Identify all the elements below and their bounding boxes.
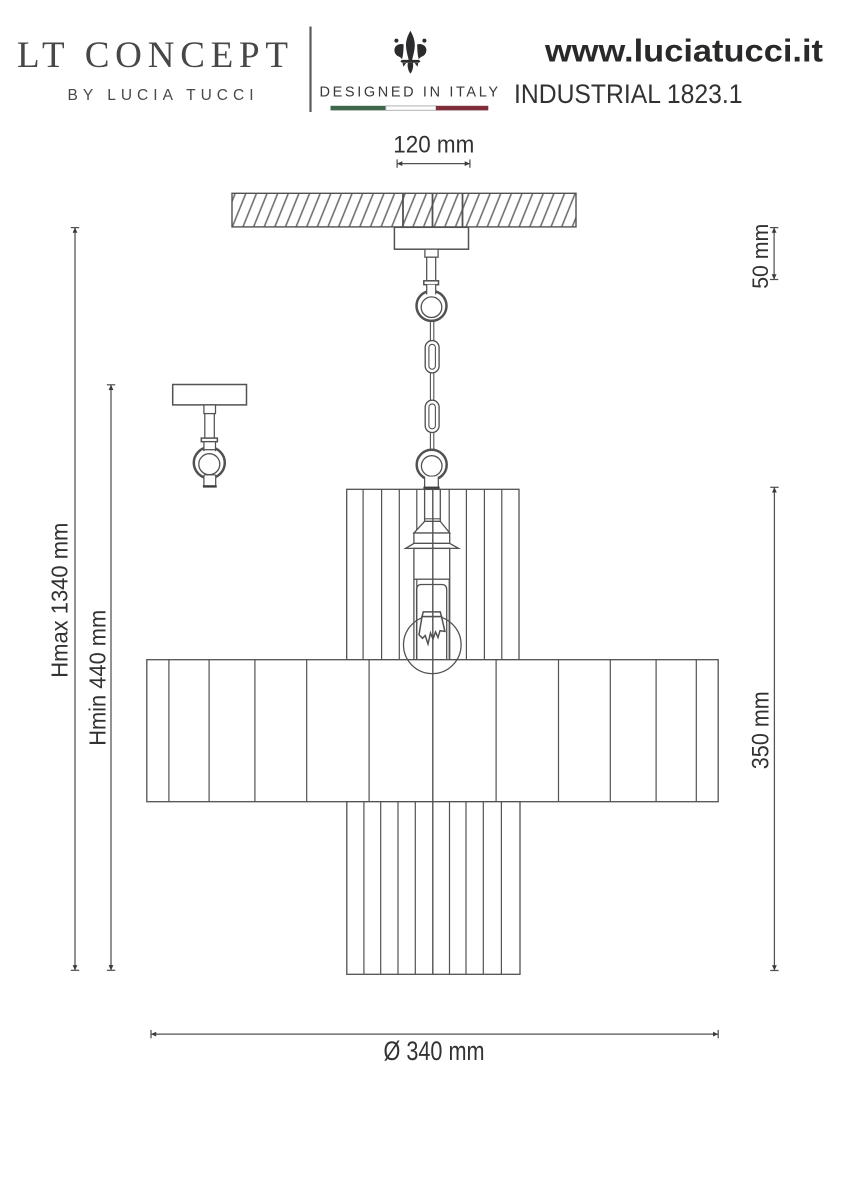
svg-text:120 mm: 120 mm <box>393 132 474 159</box>
svg-text:350 mm: 350 mm <box>748 691 775 769</box>
svg-text:Ø 340 mm: Ø 340 mm <box>384 1036 485 1066</box>
svg-text:Hmin 440 mm: Hmin 440 mm <box>85 610 111 746</box>
svg-text:50 mm: 50 mm <box>748 224 773 289</box>
svg-text:DESIGNED IN ITALY: DESIGNED IN ITALY <box>320 85 499 101</box>
svg-text:Hmax 1340 mm: Hmax 1340 mm <box>47 523 73 678</box>
svg-text:LT CONCEPT: LT CONCEPT <box>17 35 288 76</box>
svg-text:INDUSTRIAL 1823.1: INDUSTRIAL 1823.1 <box>514 79 743 109</box>
svg-text:www.luciatucci.it: www.luciatucci.it <box>544 33 824 69</box>
